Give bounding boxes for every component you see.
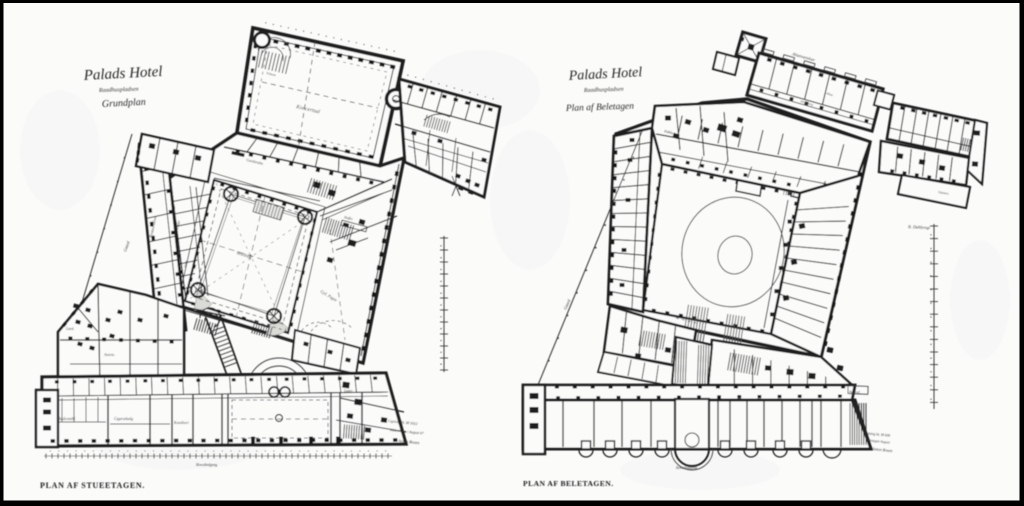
- svg-text:PLAN AF STUEETAGEN.: PLAN AF STUEETAGEN.: [40, 481, 145, 490]
- svg-text:Konditori: Konditori: [173, 421, 189, 425]
- svg-text:Grundplan: Grundplan: [102, 97, 146, 110]
- svg-text:Badeetabl.: Badeetabl.: [58, 416, 76, 421]
- svg-text:Anretn.: Anretn.: [103, 353, 115, 357]
- svg-text:Cigarudsalg: Cigarudsalg: [114, 417, 133, 421]
- svg-text:Gard.: Gard.: [66, 327, 74, 331]
- svg-text:Lager: Lager: [343, 389, 353, 393]
- svg-text:Hovedindgang: Hovedindgang: [675, 466, 697, 470]
- svg-text:PLAN AF BELETAGEN.: PLAN AF BELETAGEN.: [523, 479, 614, 488]
- svg-text:Bagind.: Bagind.: [849, 390, 861, 394]
- svg-text:Hovedindgang: Hovedindgang: [195, 463, 217, 467]
